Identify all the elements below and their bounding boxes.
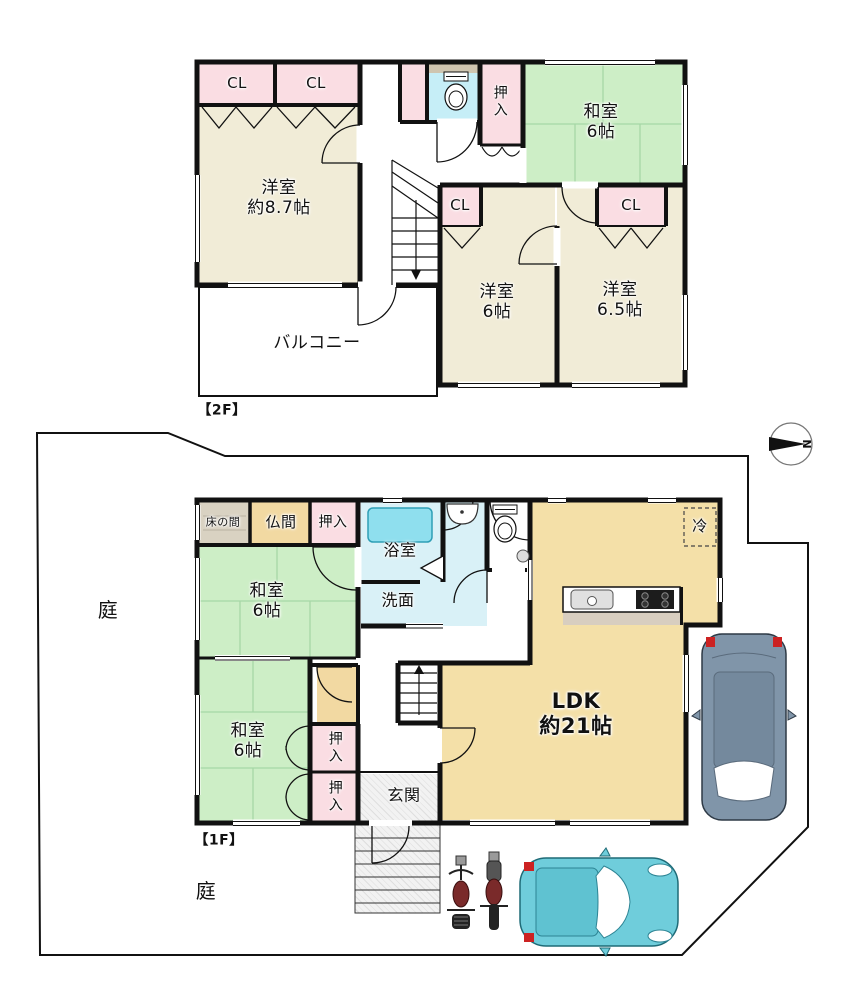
room-2f-small-closet [400,64,427,122]
oshiire-door-symbols [482,147,522,156]
compass-north-label: N [800,439,813,448]
label-butsuma: 仏間 [265,514,296,532]
label-2f-western-87: 洋室 約8.7帖 [247,178,311,218]
bathtub [368,508,432,542]
label-entrance: 玄関 [387,787,420,806]
label-garden-left: 庭 [98,599,119,623]
label-washroom: 洗面 [381,592,414,611]
car-gray [692,634,796,820]
label-bathroom: 浴室 [383,542,416,561]
label-2f-closet3: CL [450,197,470,215]
label-2f-japanese: 和室 6帖 [584,102,619,142]
stove-icon [636,590,674,609]
label-2f-western-65: 洋室 6.5帖 [597,280,643,320]
label-oshiire-top: 押入 [319,515,348,532]
windshield [714,761,774,801]
floorplan-drawing: N [0,0,848,1000]
label-2f-oshiire: 押 入 [494,85,509,118]
faucet-icon [588,597,597,606]
room-nook [317,665,357,722]
label-japanese-1: 和室 6帖 [250,581,285,621]
stairs-2f [392,160,438,285]
label-floor1-tag: 【1F】 [194,833,243,850]
label-floor2-tag: 【2F】 [197,403,246,420]
motorcycle-2 [480,852,508,930]
car-teal [520,848,678,956]
label-2f-western-6: 洋室 6帖 [480,282,515,322]
label-garden-bottom: 庭 [196,880,217,904]
toilet-icon-2f [444,72,468,110]
label-oshiire-b: 押 入 [329,780,344,813]
floorplan-page: N CL CL 洋室 約8.7帖 押 入 和 [0,0,848,1000]
label-balcony: バルコニー [273,333,360,353]
label-2f-closet1: CL [227,75,247,93]
label-refrigerator: 冷 [692,518,708,536]
label-japanese-2: 和室 6帖 [231,721,266,761]
entrance-steps [355,825,440,913]
label-2f-closet4: CL [621,197,641,215]
kitchen-counter [563,587,680,625]
label-oshiire-a: 押 入 [329,731,344,764]
label-tokonoma: 床の間 [206,517,241,530]
label-ldk: LDK 約21帖 [539,689,612,739]
motorcycle-1 [447,856,475,929]
label-2f-closet2: CL [306,75,326,93]
stairs-1f [400,665,437,715]
compass: N [769,423,813,465]
